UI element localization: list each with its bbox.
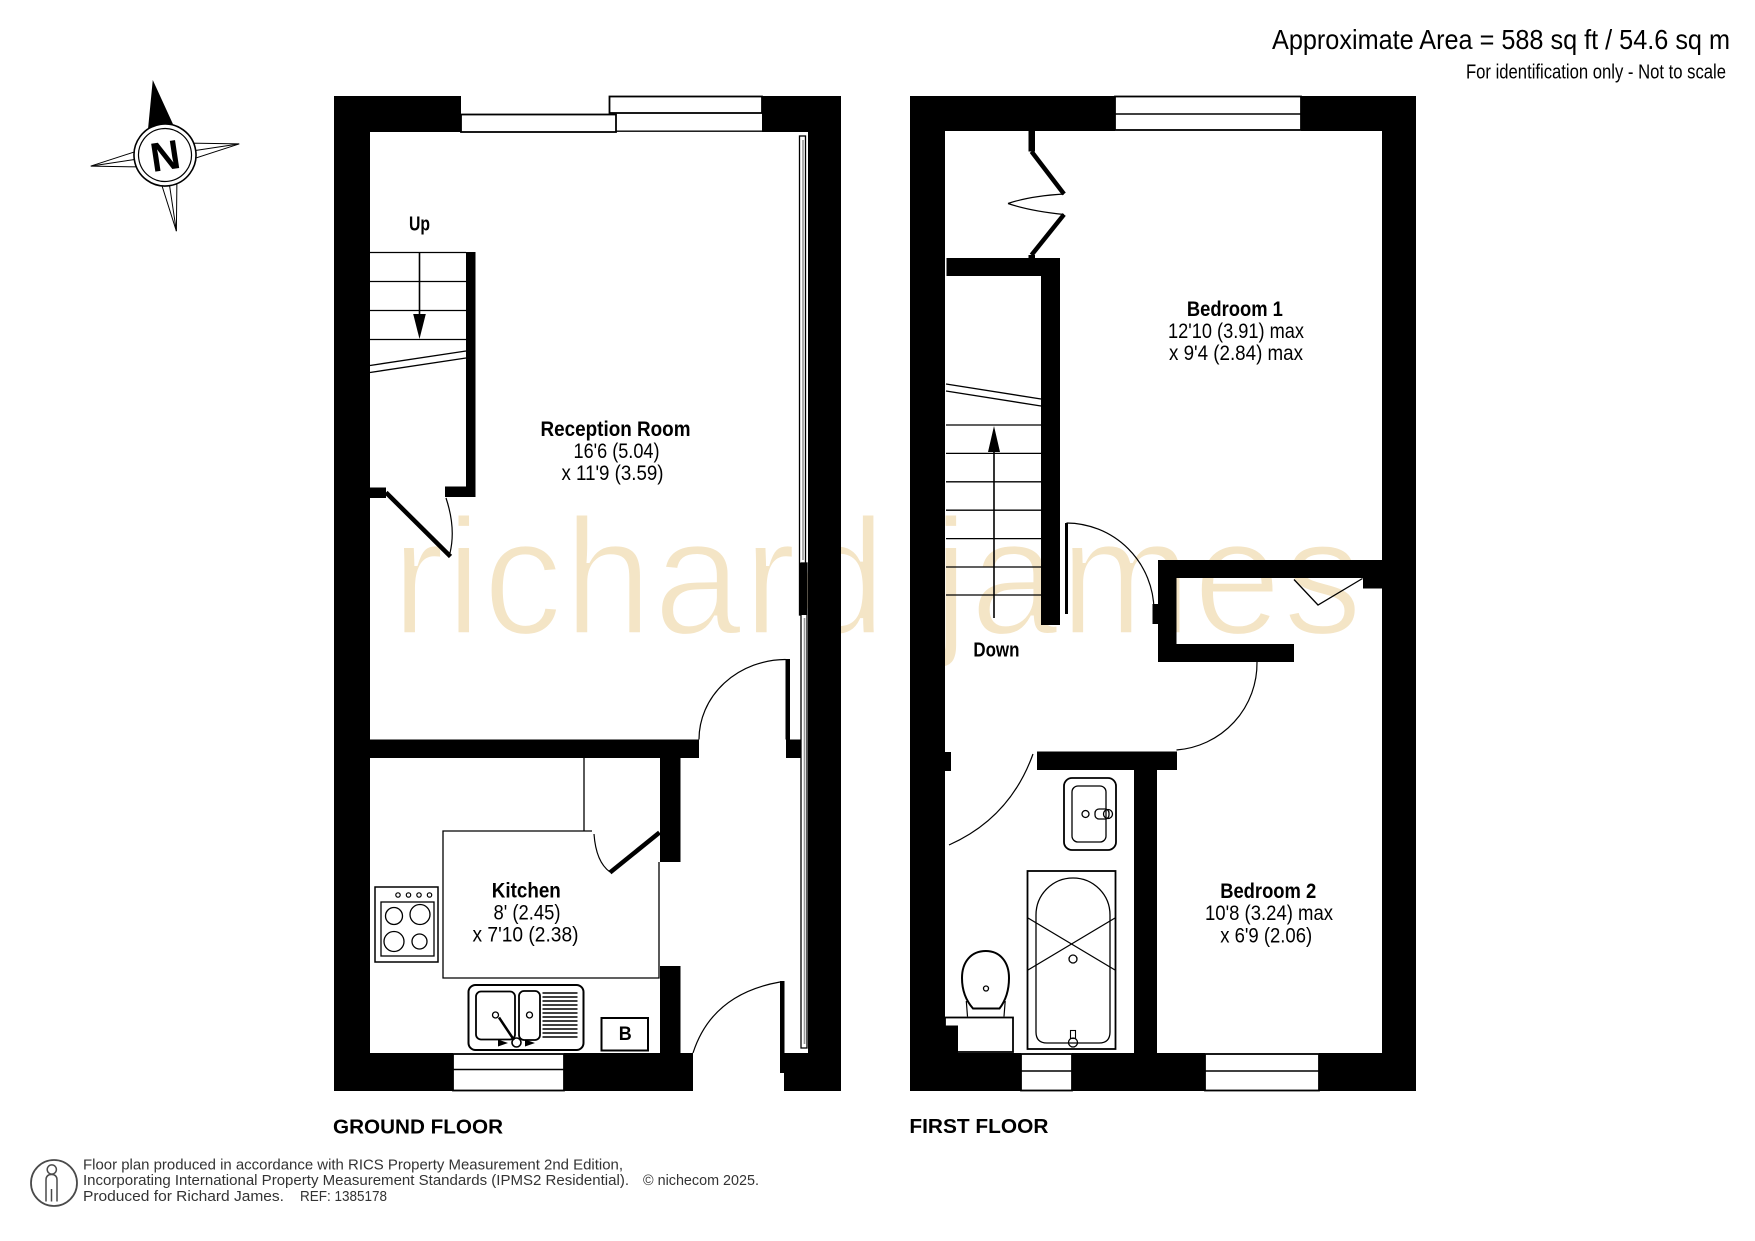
svg-text:x 7'10 (2.38): x 7'10 (2.38) xyxy=(473,924,579,947)
svg-text:8' (2.45): 8' (2.45) xyxy=(494,902,561,925)
svg-text:Reception Room: Reception Room xyxy=(541,418,691,441)
svg-text:Bedroom 1: Bedroom 1 xyxy=(1187,298,1283,321)
svg-text:Kitchen: Kitchen xyxy=(492,880,561,903)
svg-text:x 6'9 (2.06): x 6'9 (2.06) xyxy=(1220,925,1312,948)
svg-text:x 11'9 (3.59): x 11'9 (3.59) xyxy=(562,462,664,485)
svg-text:x 9'4 (2.84) max: x 9'4 (2.84) max xyxy=(1169,342,1303,365)
svg-text:© nichecom 2025.: © nichecom 2025. xyxy=(643,1172,759,1189)
svg-text:B: B xyxy=(619,1024,632,1045)
svg-text:10'8 (3.24) max: 10'8 (3.24) max xyxy=(1205,902,1333,925)
svg-text:16'6 (5.04): 16'6 (5.04) xyxy=(574,440,660,463)
svg-text:Floor plan produced in accorda: Floor plan produced in accordance with R… xyxy=(83,1157,623,1174)
svg-text:12'10 (3.91) max: 12'10 (3.91) max xyxy=(1168,320,1304,343)
svg-text:Up: Up xyxy=(409,214,430,236)
svg-text:For identification only - Not: For identification only - Not to scale xyxy=(1466,62,1726,84)
svg-text:REF: 1385178: REF: 1385178 xyxy=(300,1188,387,1205)
svg-text:Down: Down xyxy=(973,640,1019,662)
svg-text:Produced for Richard James.: Produced for Richard James. xyxy=(83,1188,284,1205)
svg-text:Approximate Area = 588 sq ft /: Approximate Area = 588 sq ft / 54.6 sq m xyxy=(1272,24,1730,55)
svg-text:Bedroom 2: Bedroom 2 xyxy=(1220,880,1316,903)
svg-text:GROUND FLOOR: GROUND FLOOR xyxy=(333,1116,503,1139)
svg-text:FIRST FLOOR: FIRST FLOOR xyxy=(909,1115,1048,1138)
svg-text:Incorporating International Pr: Incorporating International Property Mea… xyxy=(83,1172,629,1189)
